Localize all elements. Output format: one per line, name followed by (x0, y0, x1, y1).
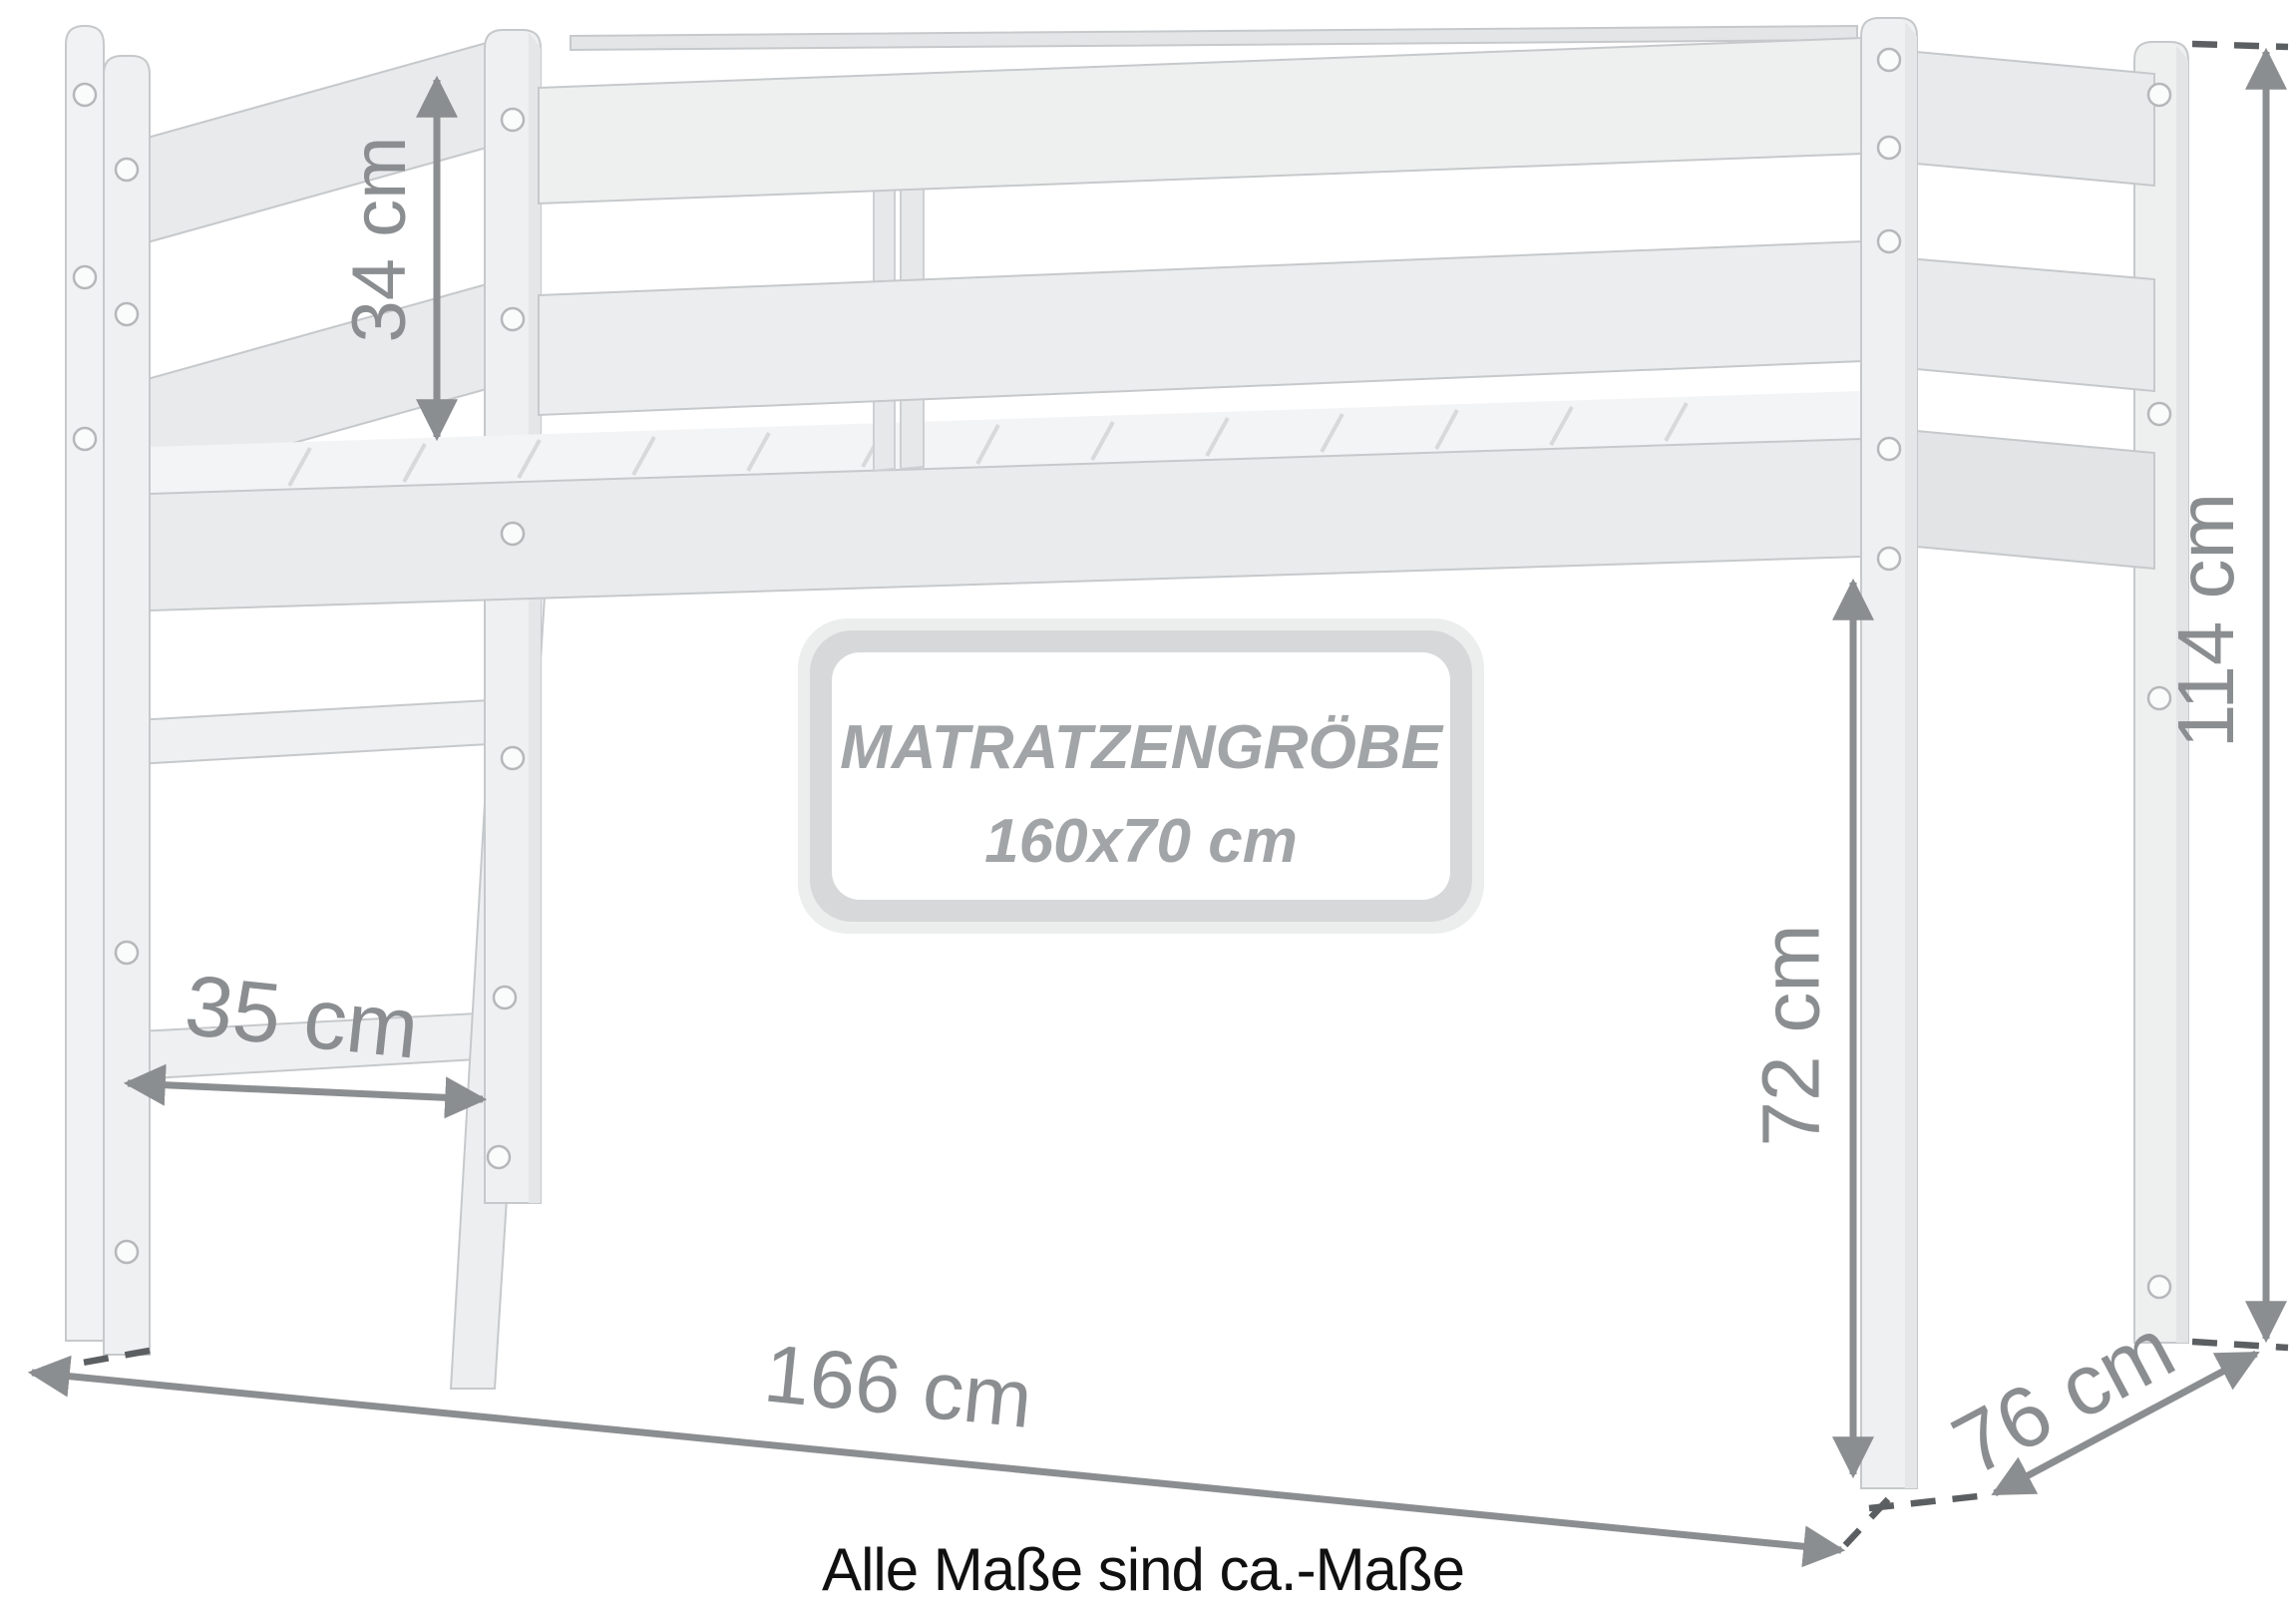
dimension-label-bed-length: 166 cm (760, 1328, 1036, 1445)
extension-dash-depth-right (2192, 1342, 2288, 1348)
product-dimension-diagram: 34 cm 35 cm 166 cm 76 cm 72 cm 114 cm MA… (0, 0, 2296, 1611)
footboard-slat-bottom (1895, 257, 2154, 391)
dimension-label-bed-depth: 76 cm (1938, 1300, 2189, 1494)
mattress-size-value: 160x70 cm (984, 807, 1298, 876)
mattress-size-badge: MATRATZENGRÖBE 160x70 cm (798, 618, 1484, 934)
loft-bed-diagram-canvas: 34 cm 35 cm 166 cm 76 cm 72 cm 114 cm MA… (0, 0, 2296, 1611)
dimension-bed-length: 166 cm (32, 1328, 1888, 1550)
ladder-rung-upper (100, 700, 489, 766)
mattress-size-title: MATRATZENGRÖBE (840, 713, 1444, 782)
guard-rail-lower (539, 241, 1863, 415)
dimension-label-guard-rail-height: 34 cm (337, 137, 422, 343)
guard-rail-upper (539, 38, 1863, 203)
footnote-measurements-note: Alle Maße sind ca.-Maße (822, 1536, 1464, 1603)
footboard-slat-top (1895, 50, 2154, 186)
ladder-rail-left (66, 26, 104, 1341)
extension-dash-height-top (2192, 44, 2288, 47)
dimension-label-under-bed-clearance: 72 cm (1746, 924, 1837, 1146)
extension-dash-length-left (38, 1351, 150, 1371)
post-front-right-shade (1905, 22, 1917, 1488)
dimension-arrow-ladder-step-width (128, 1083, 483, 1099)
dimension-bed-depth: 76 cm (1869, 1300, 2288, 1508)
post-front-left (104, 56, 150, 1355)
side-rail-right (1895, 429, 2154, 569)
dimension-label-total-height: 114 cm (2161, 493, 2250, 748)
post-back-left-shade (529, 32, 541, 1203)
headboard-slat-top (112, 34, 519, 252)
dimension-under-bed-clearance: 72 cm (1746, 583, 1853, 1474)
